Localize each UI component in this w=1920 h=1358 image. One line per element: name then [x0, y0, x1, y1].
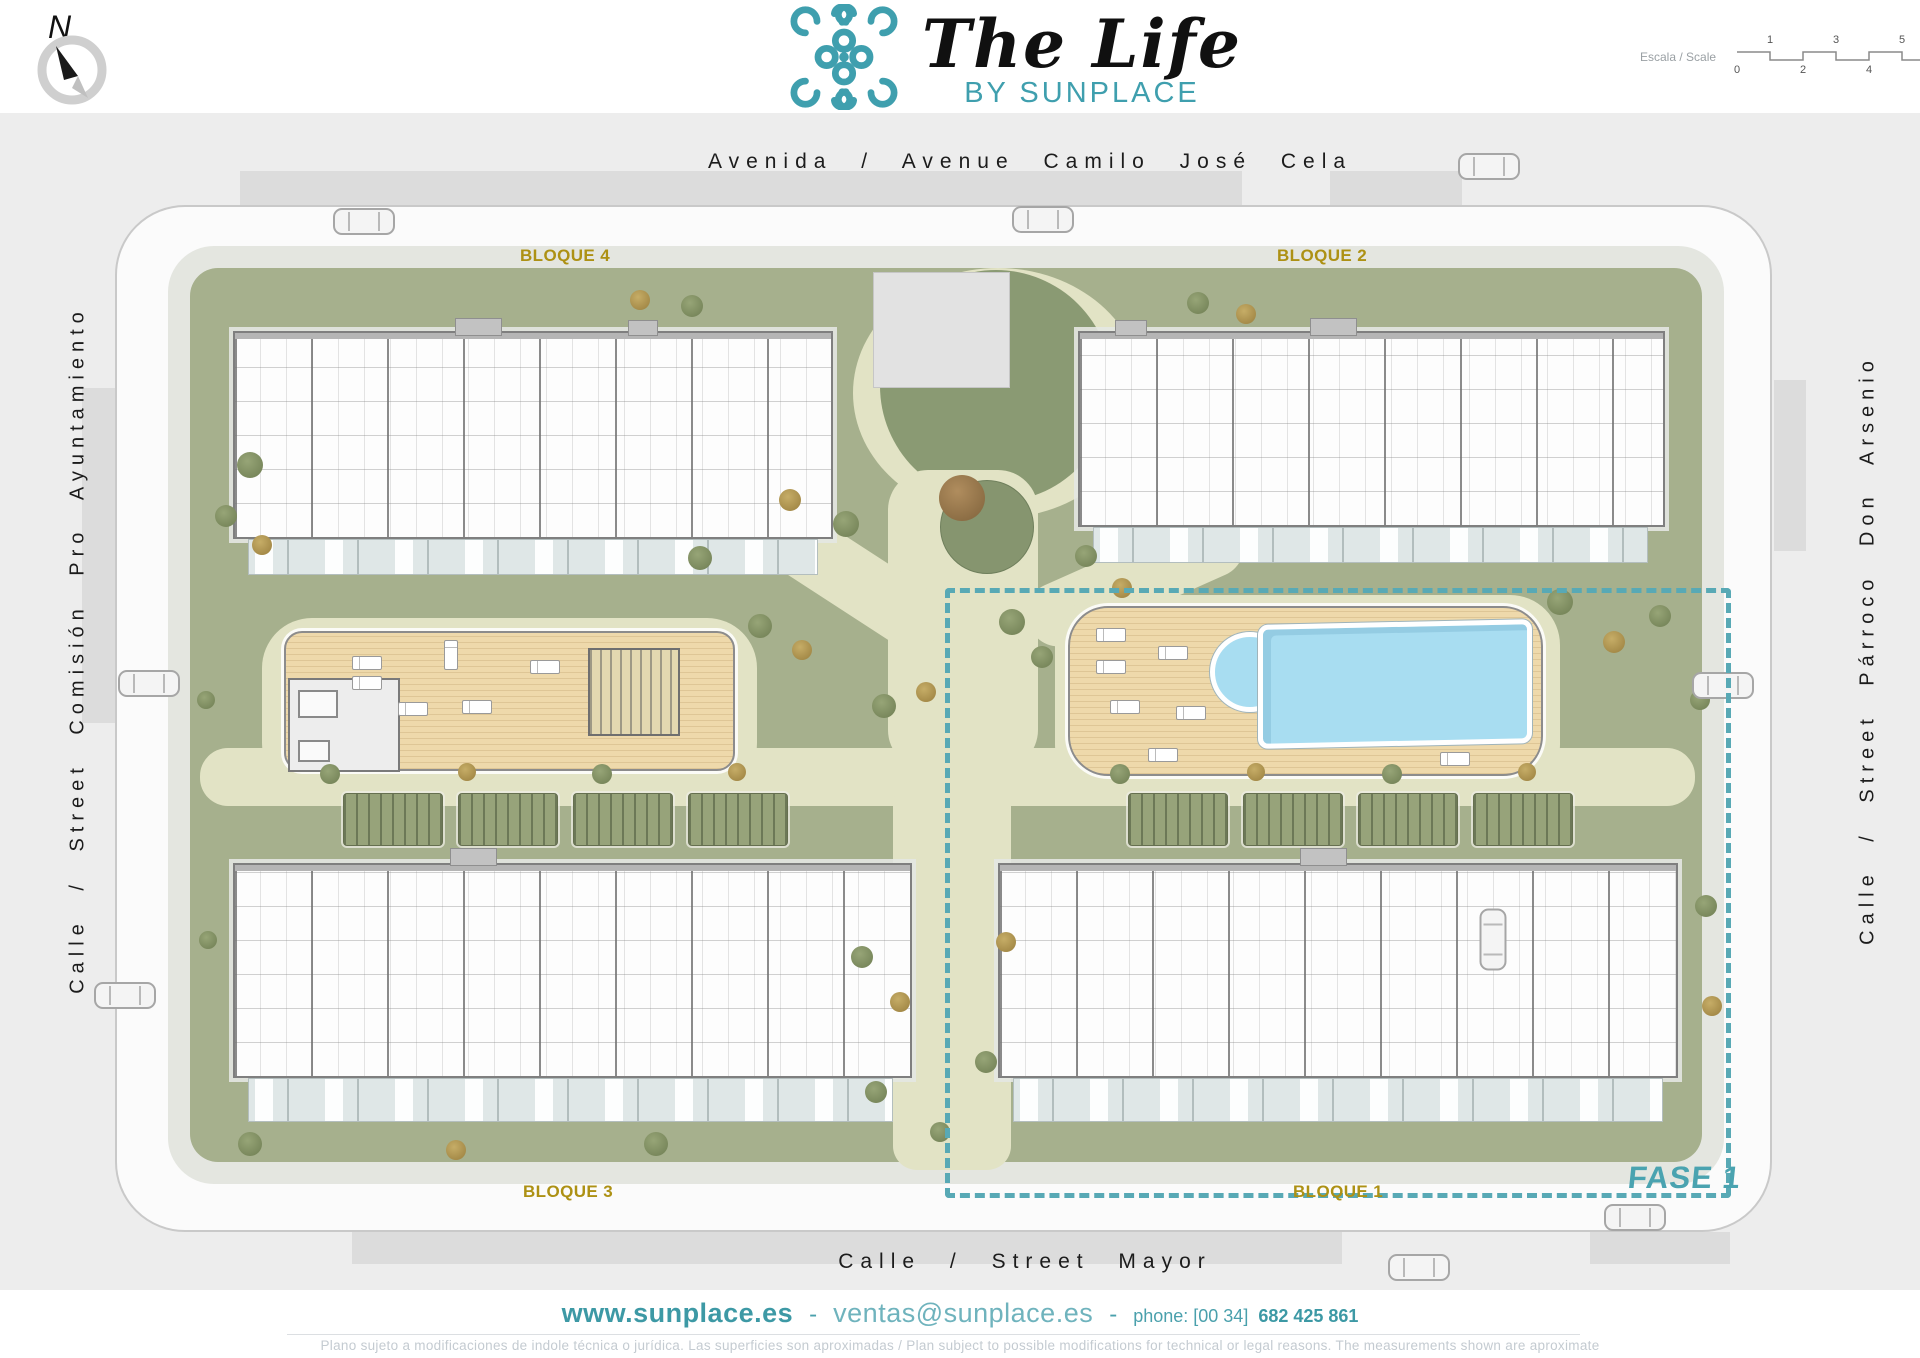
tree-icon — [1075, 545, 1097, 567]
building-bloque-2 — [1078, 331, 1665, 527]
logo-subtitle: BY SUNPLACE — [964, 78, 1200, 108]
phone-number: 682 425 861 — [1258, 1306, 1358, 1327]
scale-ticks-top: 135 — [1736, 34, 1920, 46]
website-link[interactable]: www.sunplace.es — [562, 1298, 794, 1329]
tree-icon — [792, 640, 812, 660]
stair-core — [1310, 318, 1357, 336]
tree-icon — [833, 511, 859, 537]
sun-lounger-icon — [352, 676, 382, 690]
disclaimer-text: Plano sujeto a modificaciones de indole … — [0, 1338, 1920, 1353]
tree-icon — [916, 682, 936, 702]
scale-ticks-bottom: 0246 — [1736, 64, 1920, 76]
scale-tick: 3 — [1833, 34, 1839, 46]
tree-icon — [238, 1132, 262, 1156]
scale-bar: Escala / Scale 135 0246 — [1640, 34, 1906, 78]
tree-icon — [1236, 304, 1256, 324]
bloque-4-label: BLOQUE 4 — [520, 246, 610, 266]
street-label-left: Calle / Street Comisión Pro Ayuntamiento — [67, 306, 90, 994]
sidewalk-top-right — [1330, 171, 1462, 205]
bloque-3-label: BLOQUE 3 — [523, 1182, 613, 1202]
street-label-bottom: Calle / Street Mayor — [838, 1250, 1212, 1274]
scale-tick: 4 — [1866, 64, 1872, 76]
phase-1-label: FASE 1 — [1626, 1160, 1743, 1196]
sun-lounger-icon — [352, 656, 382, 670]
phone-label: phone: [00 34] — [1133, 1306, 1248, 1327]
terraces-bloque-3 — [248, 1078, 893, 1122]
phase-1-boundary — [945, 588, 1731, 1198]
street-label-right: Calle / Street Párroco Don Arsenio — [1857, 355, 1880, 945]
tree-icon — [939, 475, 985, 521]
email-link[interactable]: ventas@sunplace.es — [833, 1298, 1093, 1329]
building-bloque-4 — [233, 331, 833, 539]
separator: - — [809, 1301, 817, 1329]
tree-icon — [865, 1081, 887, 1103]
logo-title: The Life — [922, 4, 1242, 84]
sunplace-logo-knot-icon — [780, 4, 908, 110]
tree-icon — [458, 763, 476, 781]
tree-icon — [252, 535, 272, 555]
stair-core — [455, 318, 502, 336]
sun-lounger-icon — [398, 702, 428, 716]
scale-tick: 5 — [1899, 34, 1905, 46]
stair-core — [628, 320, 658, 336]
car-icon — [1604, 1204, 1666, 1231]
parking-canopy — [458, 793, 558, 846]
contact-line: www.sunplace.es - ventas@sunplace.es - p… — [0, 1298, 1920, 1329]
car-icon — [1458, 153, 1520, 180]
tree-icon — [688, 546, 712, 570]
stair-core — [1115, 320, 1147, 336]
building-bloque-3 — [233, 863, 912, 1078]
scale-tick: 0 — [1734, 64, 1740, 76]
footer: www.sunplace.es - ventas@sunplace.es - p… — [0, 1290, 1920, 1358]
car-icon — [118, 670, 180, 697]
sun-lounger-icon — [462, 700, 492, 714]
sun-lounger-icon — [444, 640, 458, 670]
tree-icon — [872, 694, 896, 718]
parking-canopy — [688, 793, 788, 846]
tree-icon — [215, 505, 237, 527]
car-icon — [1012, 206, 1074, 233]
tree-icon — [237, 452, 263, 478]
header: N — [0, 0, 1920, 113]
tree-icon — [644, 1132, 668, 1156]
sidewalk-top — [240, 171, 1242, 205]
street-label-top: Avenida / Avenue Camilo José Cela — [708, 150, 1352, 174]
bloque-1-label: BLOQUE 1 — [1293, 1182, 1383, 1202]
terraces-bloque-4 — [248, 539, 818, 575]
separator: - — [1109, 1301, 1117, 1329]
scale-tick: 1 — [1767, 34, 1773, 46]
tree-icon — [779, 489, 801, 511]
car-icon — [1388, 1254, 1450, 1281]
tree-icon — [1187, 292, 1209, 314]
parking-canopy — [343, 793, 443, 846]
tree-icon — [630, 290, 650, 310]
tree-icon — [728, 763, 746, 781]
tree-icon — [851, 946, 873, 968]
parking-canopy — [573, 793, 673, 846]
car-icon — [333, 208, 395, 235]
tree-icon — [199, 931, 217, 949]
tree-icon — [446, 1140, 466, 1160]
tree-icon — [197, 691, 215, 709]
tree-icon — [592, 764, 612, 784]
tree-icon — [748, 614, 772, 638]
sidewalk-bottom-right — [1590, 1232, 1730, 1264]
entrance-plaza-square — [873, 272, 1010, 388]
tree-icon — [681, 295, 703, 317]
scale-bar-label: Escala / Scale — [1640, 50, 1716, 64]
sidewalk-right — [1774, 380, 1806, 551]
bloque-2-label: BLOQUE 2 — [1277, 246, 1367, 266]
footer-divider — [287, 1334, 1580, 1335]
tree-icon — [320, 764, 340, 784]
terraces-bloque-2 — [1093, 527, 1648, 563]
tree-icon — [890, 992, 910, 1012]
compass-north-icon: N — [26, 4, 112, 115]
scale-bar-graphic — [1736, 50, 1920, 62]
stair-core — [450, 848, 497, 866]
gym-pavilion — [288, 678, 400, 772]
logo: The Life BY SUNPLACE — [780, 4, 1242, 110]
car-icon — [94, 982, 156, 1009]
pergola-stairs — [588, 648, 680, 736]
site-plan-page: N — [0, 0, 1920, 1358]
scale-tick: 2 — [1800, 64, 1806, 76]
sun-lounger-icon — [530, 660, 560, 674]
